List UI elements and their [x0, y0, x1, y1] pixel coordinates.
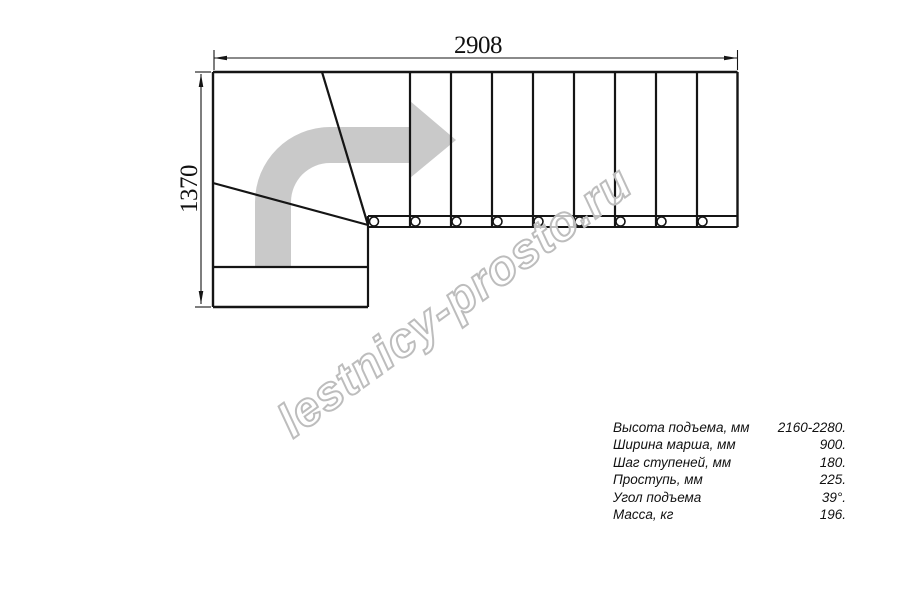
spec-label: Угол подъема	[613, 489, 701, 506]
spec-label: Высота подъема, мм	[613, 419, 749, 436]
spec-row-angle: Угол подъема 39°.	[613, 489, 846, 506]
width-dimension: 2908	[214, 32, 738, 70]
spec-value: 196.	[820, 506, 846, 523]
stair-plan-page: 2908 1370 lestnicy-prosto.ru Высота подъ…	[0, 0, 900, 600]
spec-value: 225.	[820, 471, 846, 488]
baluster-circle	[575, 217, 584, 226]
baluster-circle	[534, 217, 543, 226]
baluster-circle	[493, 217, 502, 226]
height-dimension: 1370	[176, 72, 211, 307]
spec-value: 2160-2280.	[778, 419, 846, 436]
baluster-circle	[657, 217, 666, 226]
spec-value: 39°.	[822, 489, 846, 506]
baluster-circle	[698, 217, 707, 226]
baluster-circle	[411, 217, 420, 226]
spec-value: 180.	[820, 454, 846, 471]
spec-row-height: Высота подъема, мм 2160-2280.	[613, 419, 846, 436]
spec-label: Шаг ступеней, мм	[613, 454, 731, 471]
spec-value: 900.	[820, 436, 846, 453]
width-dimension-label: 2908	[454, 32, 502, 59]
baluster-circle	[616, 217, 625, 226]
spec-row-step-rise: Шаг ступеней, мм 180.	[613, 454, 846, 471]
arrow-right-icon	[724, 56, 737, 61]
spec-table: Высота подъема, мм 2160-2280. Ширина мар…	[613, 419, 846, 523]
spec-row-tread-depth: Проступь, мм 225.	[613, 471, 846, 488]
spec-row-flight-width: Ширина марша, мм 900.	[613, 436, 846, 453]
arrow-down-icon	[199, 291, 204, 304]
height-dimension-label: 1370	[176, 165, 203, 213]
baluster-circle	[452, 217, 461, 226]
tread-lines	[410, 72, 697, 227]
arrow-up-icon	[199, 74, 204, 87]
spec-label: Проступь, мм	[613, 471, 703, 488]
spec-label: Ширина марша, мм	[613, 436, 736, 453]
spec-label: Масса, кг	[613, 506, 673, 523]
arrow-left-icon	[214, 56, 227, 61]
baluster-circle	[370, 217, 379, 226]
spec-row-mass: Масса, кг 196.	[613, 506, 846, 523]
